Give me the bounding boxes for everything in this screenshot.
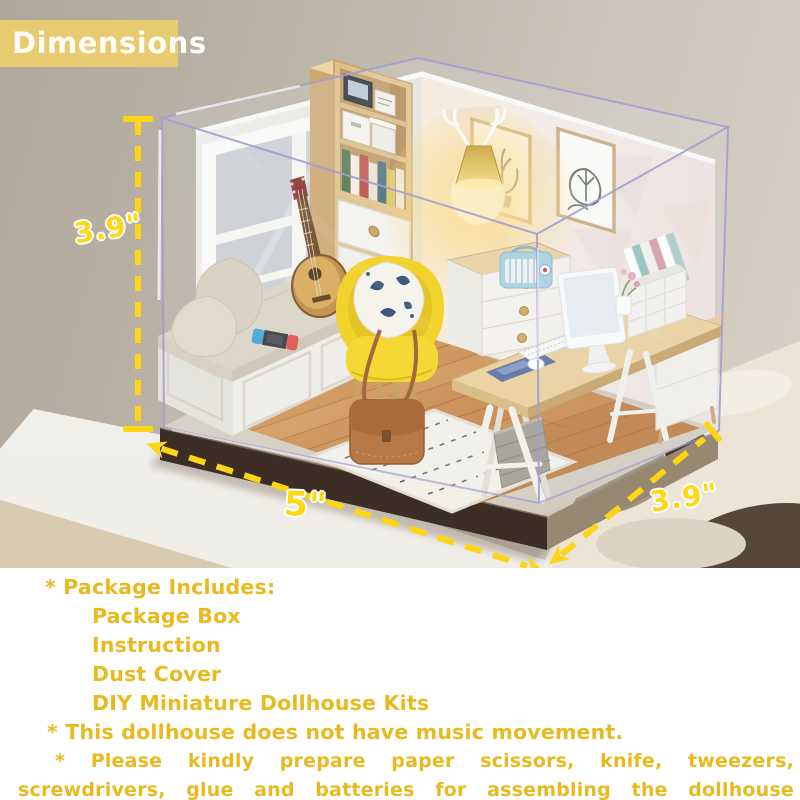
caption-line: Package Box: [0, 602, 800, 631]
product-image: 3.9" 5" 3.9" Dimensions * Package Includ…: [0, 0, 800, 800]
dashed-line: [135, 120, 141, 428]
caption-line: * Package Includes:: [0, 573, 800, 602]
dimensions-badge: Dimensions: [0, 20, 178, 67]
caption-line: * Please kindly prepare paper scissors, …: [0, 747, 800, 800]
acrylic-dust-cover: [159, 58, 728, 503]
caption: * Package Includes: Package Box Instruct…: [0, 568, 800, 800]
caption-line: * This dollhouse does not have music mov…: [0, 718, 800, 747]
caption-line: DIY Miniature Dollhouse Kits: [0, 689, 800, 718]
caption-line: Dust Cover: [0, 660, 800, 689]
height-dimension-line: [130, 118, 146, 430]
caption-line: Instruction: [0, 631, 800, 660]
width-dimension-label: 5": [283, 484, 328, 526]
dimension-cap: [123, 426, 153, 432]
photo-area: 3.9" 5" 3.9" Dimensions: [0, 0, 800, 568]
